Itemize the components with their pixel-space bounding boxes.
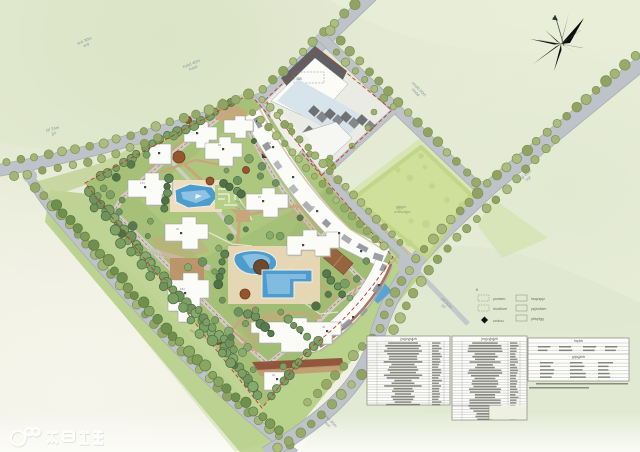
svg-text:8z: 8z	[312, 205, 316, 209]
svg-text:gtyqpk: gtyqpk	[396, 205, 406, 209]
svg-text:zcrkou: zcrkou	[493, 319, 504, 323]
svg-text:17z: 17z	[140, 181, 145, 185]
svg-text:15z: 15z	[180, 287, 185, 291]
svg-text:hxpbb: hxpbb	[574, 339, 583, 343]
svg-text:36B: 36B	[296, 77, 302, 81]
svg-text:yootwm: yootwm	[493, 297, 505, 301]
svg-text:3z: 3z	[176, 227, 180, 231]
svg-text:w-kmzdgm: w-kmzdgm	[394, 210, 411, 214]
svg-text:2z: 2z	[258, 195, 262, 199]
svg-text:(eq)zyjsjjzb: (eq)zyjsjjzb	[481, 337, 498, 341]
svg-text:(yq)zyjsjjzb: (yq)zyjsjjzb	[400, 337, 417, 341]
svg-text:ghjsjjzbb: ghjsjjzbb	[572, 355, 585, 359]
svg-text:4z: 4z	[268, 141, 272, 145]
svg-text:4z: 4z	[322, 325, 326, 329]
svg-text:hsqzspjz: hsqzspjz	[531, 297, 545, 301]
svg-text:dxckfwm: dxckfwm	[493, 307, 507, 311]
svg-text:3z: 3z	[272, 373, 276, 377]
svg-text:pttsyfgg: pttsyfgg	[531, 317, 544, 321]
svg-text:6z: 6z	[218, 143, 222, 147]
svg-text:tl: tl	[476, 287, 478, 292]
svg-text:3z: 3z	[356, 245, 360, 249]
svg-text:ysjzwfwm: ysjzwfwm	[531, 307, 546, 311]
